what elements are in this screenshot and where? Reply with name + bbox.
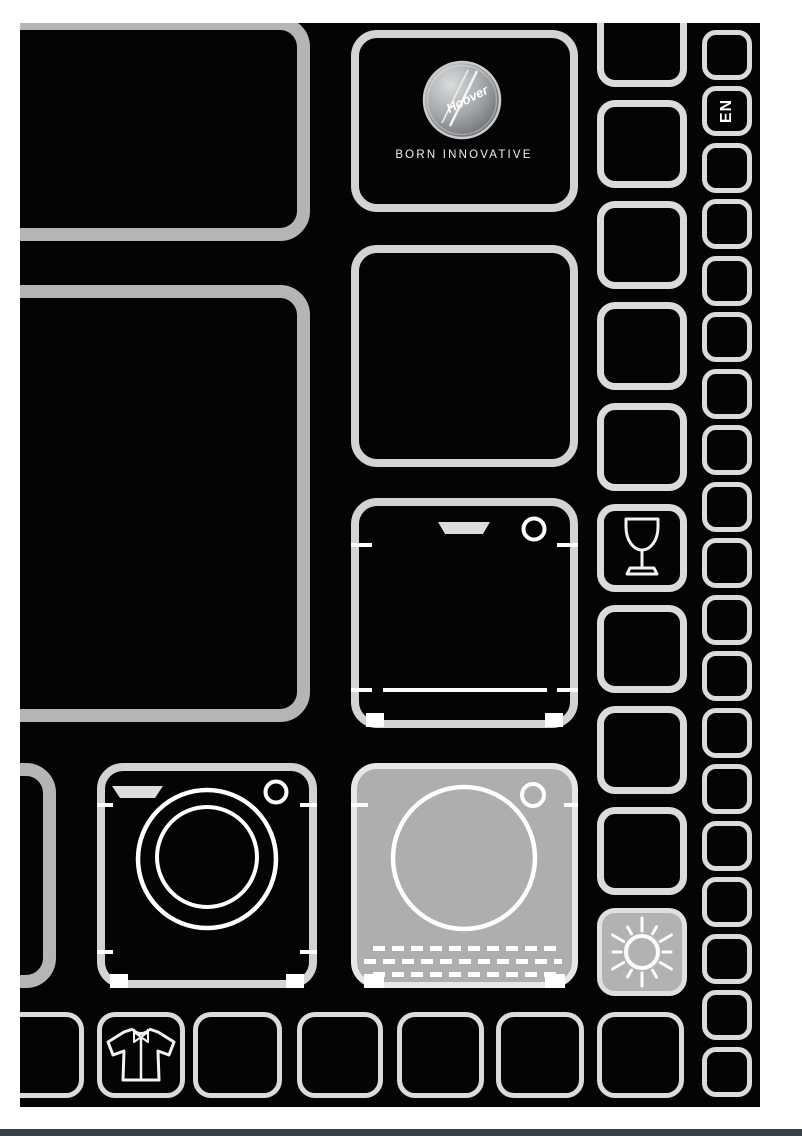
grid-cell-col2 <box>702 425 752 475</box>
grid-cell-col2 <box>702 708 752 758</box>
logo-slash-2 <box>442 70 468 123</box>
grid-cell-col1 <box>597 403 687 491</box>
sun-cell <box>597 908 687 996</box>
grid-cell-col1 <box>597 201 687 289</box>
hoover-logo-badge: Hoover BORN INNOVATIVE <box>351 30 578 212</box>
grid-cell-col2 <box>702 1047 752 1097</box>
grid-cell-col2 <box>702 143 752 193</box>
grid-cell-col2 <box>702 821 752 871</box>
language-badge-cell: EN <box>702 86 752 136</box>
shirt-icon <box>97 1012 185 1098</box>
grid-cell-partial-bottom-left <box>20 1012 84 1098</box>
washing-machine-cell <box>97 763 317 988</box>
wine-glass-icon <box>597 504 687 592</box>
grid-cell-col1 <box>597 100 687 188</box>
grid-cell-col2 <box>702 312 752 362</box>
logo-slash <box>450 71 477 126</box>
grid-cell-col2 <box>702 369 752 419</box>
washing-machine-icon <box>97 763 317 988</box>
grid-cell-col2 <box>702 877 752 927</box>
sun-icon <box>597 908 687 996</box>
grid-cell-col1 <box>597 605 687 693</box>
grid-cell-col1 <box>597 807 687 895</box>
dishwasher-cell <box>351 498 578 728</box>
grid-cell-col2 <box>702 482 752 532</box>
grid-cell-bottom <box>597 1012 684 1098</box>
grid-cell-col2 <box>702 651 752 701</box>
cover-grid: Hoover BORN INNOVATIVE <box>20 23 760 1107</box>
manual-cover-page: Hoover BORN INNOVATIVE <box>0 0 802 1136</box>
hoover-logo-cell: Hoover BORN INNOVATIVE <box>351 30 578 212</box>
dryer-vent-grille <box>364 946 565 988</box>
grid-cell-col2 <box>702 199 752 249</box>
grid-cell-bottom <box>297 1012 383 1098</box>
grid-cell-col1 <box>597 706 687 794</box>
grid-cell-col2 <box>702 256 752 306</box>
wine-glass-cell <box>597 504 687 592</box>
grid-cell-bottom <box>496 1012 584 1098</box>
language-badge: EN <box>718 99 736 123</box>
grid-cell-col2 <box>702 990 752 1040</box>
grid-cell-middle-empty <box>351 245 578 467</box>
grid-cell-bottom <box>397 1012 484 1098</box>
page-edge-bar <box>0 1129 802 1136</box>
logo-text: Hoover <box>444 82 492 116</box>
grid-cell-large-top-left <box>20 23 310 241</box>
grid-cell-col2 <box>702 934 752 984</box>
grid-cell-large-mid-left <box>20 285 310 722</box>
dishwasher-icon <box>351 498 578 728</box>
shirt-cell <box>97 1012 185 1098</box>
grid-cell-col2 <box>702 595 752 645</box>
grid-cell-col1 <box>597 23 687 87</box>
grid-cell-col2 <box>702 764 752 814</box>
tumble-dryer-icon <box>351 763 578 988</box>
grid-cell-col2 <box>702 30 752 80</box>
grid-cell-col1 <box>597 302 687 390</box>
brand-tagline: BORN INNOVATIVE <box>395 149 532 161</box>
grid-cell-col2 <box>702 538 752 588</box>
grid-cell-partial-left <box>20 763 56 988</box>
grid-cell-bottom <box>193 1012 282 1098</box>
tumble-dryer-cell <box>351 763 578 988</box>
